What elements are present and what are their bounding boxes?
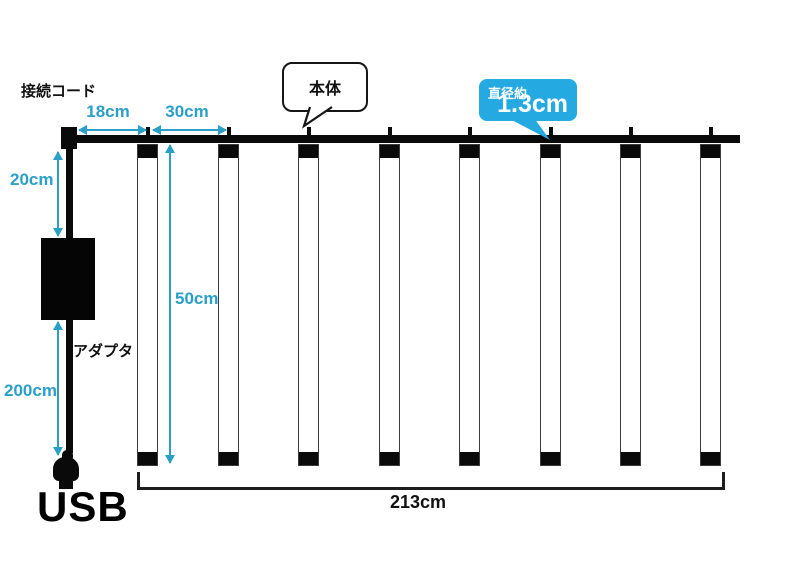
- rail-end-connector: [61, 127, 77, 149]
- tube-bottom-cap: [219, 452, 238, 465]
- adapter-label: アダプタ: [73, 340, 133, 361]
- tube-bottom-cap: [299, 452, 318, 465]
- dim-total-width-label: 213cm: [378, 492, 458, 513]
- tube-top-cap: [460, 145, 479, 158]
- dim-tube-length-label: 50cm: [175, 289, 218, 309]
- product-diagram: 接続コード 18cm 30cm 20cm 50cm 200cm アダプタ USB…: [0, 0, 800, 566]
- tube-bottom-cap: [460, 452, 479, 465]
- light-tube: [137, 144, 158, 466]
- light-tube: [218, 144, 239, 466]
- tube-top-cap: [138, 145, 157, 158]
- arrow-tube-length: [169, 145, 171, 463]
- light-tube: [459, 144, 480, 466]
- dim-offset-left-label: 18cm: [80, 102, 136, 122]
- dim-adapter-to-usb-label: 200cm: [4, 381, 57, 401]
- usb-plug-body: [53, 457, 79, 481]
- arrow-adapter-to-usb: [57, 322, 59, 455]
- tube-top-cap: [541, 145, 560, 158]
- arrow-cord-to-adapter: [57, 152, 59, 236]
- light-tube: [298, 144, 319, 466]
- tube-top-cap: [380, 145, 399, 158]
- diameter-badge-tail: [505, 118, 555, 144]
- light-tube: [700, 144, 721, 466]
- arrow-offset-left: [79, 129, 146, 131]
- tube-bottom-cap: [621, 452, 640, 465]
- tube-top-cap: [219, 145, 238, 158]
- diameter-value-label: 1.3cm: [497, 92, 568, 117]
- dim-tube-spacing-label: 30cm: [156, 102, 218, 122]
- power-cord-lower: [66, 319, 73, 453]
- power-cord-upper: [66, 148, 73, 239]
- usb-label: USB: [37, 483, 129, 531]
- tube-top-cap: [701, 145, 720, 158]
- light-tube: [379, 144, 400, 466]
- tube-top-cap: [299, 145, 318, 158]
- dim-cord-to-adapter-label: 20cm: [10, 170, 53, 190]
- bracket-tick-right: [722, 472, 725, 488]
- adapter-box: [41, 238, 95, 320]
- tube-bottom-cap: [541, 452, 560, 465]
- tube-bottom-cap: [701, 452, 720, 465]
- connection-cord-label: 接続コード: [21, 80, 96, 101]
- tube-top-cap: [621, 145, 640, 158]
- hanging-rail: [65, 135, 740, 143]
- arrow-tube-spacing: [153, 129, 226, 131]
- total-width-bracket: [137, 487, 725, 490]
- main-body-callout-tail: [298, 104, 338, 130]
- bracket-tick-left: [137, 472, 140, 488]
- diameter-badge: 直径約 1.3cm: [479, 79, 577, 121]
- light-tube: [620, 144, 641, 466]
- main-body-label: 本体: [309, 75, 341, 99]
- tube-bottom-cap: [380, 452, 399, 465]
- light-tube: [540, 144, 561, 466]
- tube-bottom-cap: [138, 452, 157, 465]
